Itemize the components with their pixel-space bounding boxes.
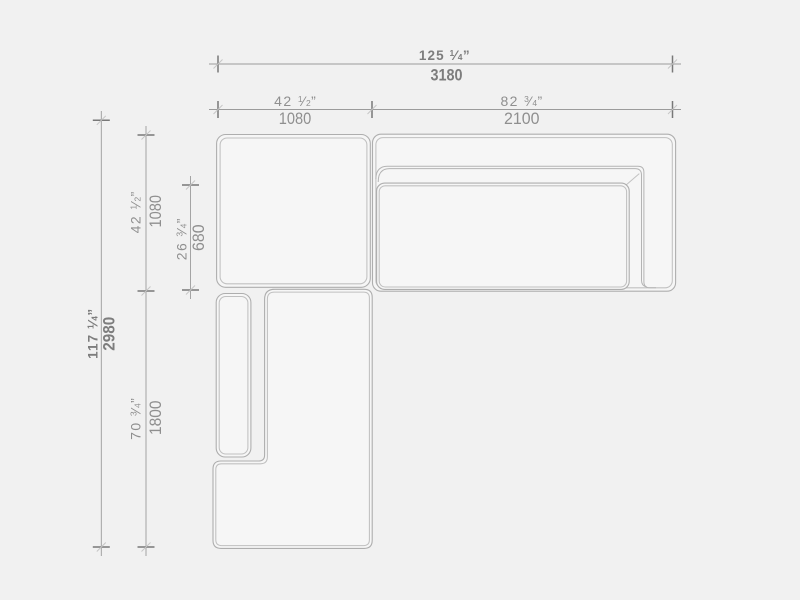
svg-text:2100: 2100: [504, 110, 540, 128]
svg-text:82 3⁄4”: 82 3⁄4”: [500, 93, 543, 109]
svg-text:3180: 3180: [431, 66, 463, 84]
svg-text:125 1⁄4”: 125 1⁄4”: [419, 48, 471, 63]
svg-text:680: 680: [190, 224, 208, 251]
svg-text:26 3⁄4”: 26 3⁄4”: [174, 217, 190, 260]
svg-text:117 1⁄4”: 117 1⁄4”: [85, 308, 100, 359]
svg-text:1080: 1080: [147, 195, 165, 228]
svg-text:1800: 1800: [147, 400, 165, 435]
svg-text:70 3⁄4”: 70 3⁄4”: [127, 397, 143, 440]
svg-text:1080: 1080: [279, 110, 312, 128]
svg-text:42 1⁄2”: 42 1⁄2”: [127, 190, 143, 233]
svg-text:42 1⁄2”: 42 1⁄2”: [274, 93, 317, 109]
svg-text:2980: 2980: [101, 317, 119, 351]
